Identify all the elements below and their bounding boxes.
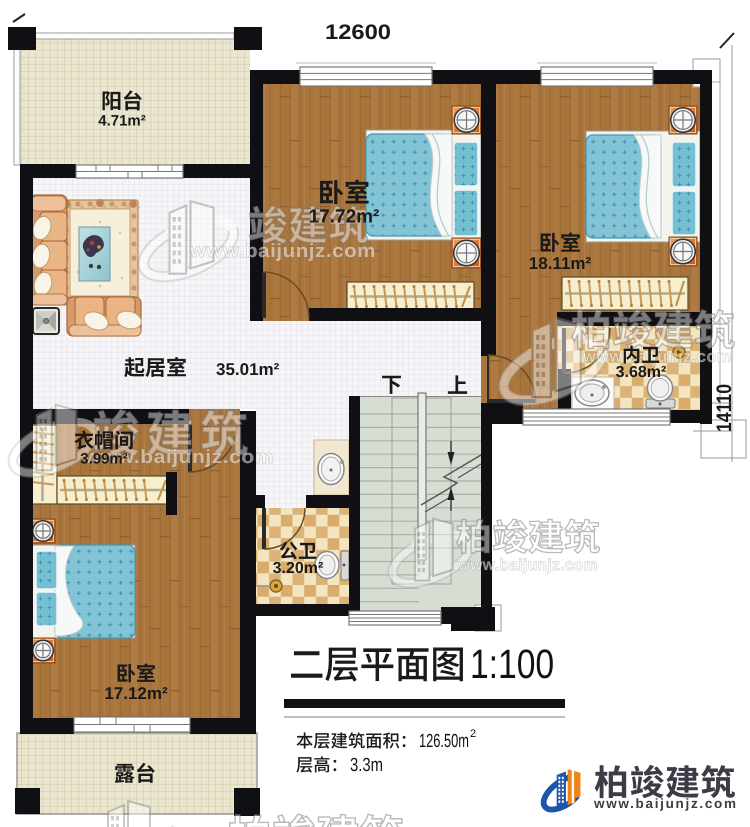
svg-text:www.baijunjz.com: www.baijunjz.com [457,557,598,574]
svg-text:14110: 14110 [713,384,736,432]
svg-text:17.72m²: 17.72m² [309,207,380,228]
svg-text:35.01m²: 35.01m² [216,360,280,379]
svg-text:3.99m²: 3.99m² [80,450,128,467]
svg-text:3.68m²: 3.68m² [616,364,667,381]
svg-text:www.baijunjz.com: www.baijunjz.com [189,241,376,262]
svg-text:www.baijunjz.com: www.baijunjz.com [593,796,736,811]
svg-text:3.20m²: 3.20m² [273,560,324,577]
svg-text:18.11m²: 18.11m² [529,254,592,273]
svg-text:126.50m: 126.50m [419,731,469,752]
svg-text:2: 2 [470,728,476,740]
svg-text:17.12m²: 17.12m² [104,684,168,703]
svg-text:3.3m: 3.3m [350,755,383,776]
svg-text:12600: 12600 [325,21,391,44]
svg-text:4.71m²: 4.71m² [98,112,146,129]
